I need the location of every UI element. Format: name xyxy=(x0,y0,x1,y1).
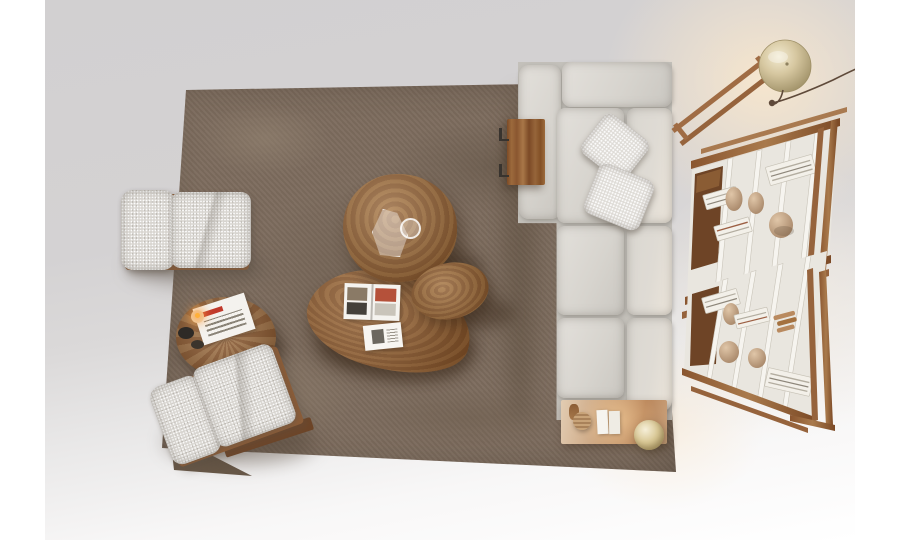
floor-lamp xyxy=(673,40,855,144)
shelf-mid-rail xyxy=(685,255,831,305)
shelf-divider xyxy=(731,271,756,393)
ceramic-vase xyxy=(726,187,743,211)
woven-box xyxy=(573,412,591,430)
book-stack xyxy=(714,217,753,241)
armchair-back-cushion xyxy=(121,190,175,270)
lamp-stand-rung xyxy=(675,124,687,139)
booklet-text-lines xyxy=(386,328,398,342)
candle-flame xyxy=(195,313,200,318)
sofa-backrest-cushion xyxy=(627,226,672,315)
sofa-seat-cushion xyxy=(557,226,624,315)
shelf-bottom-rail xyxy=(682,368,815,424)
book-stack xyxy=(765,154,816,185)
side-table-leg xyxy=(499,128,509,141)
photo-frame xyxy=(0,0,900,540)
side-table-leg xyxy=(499,164,509,177)
bookshelf-upper xyxy=(682,107,847,319)
shelf-divider xyxy=(715,158,733,292)
shelf-right-post xyxy=(807,127,824,270)
book-stack xyxy=(701,288,740,313)
ceramic-vase xyxy=(719,341,739,363)
shelf-panel-bank xyxy=(684,251,827,418)
shelf-right-post xyxy=(807,268,818,422)
shelf-right-post xyxy=(819,270,833,427)
booklet-photo xyxy=(371,329,384,344)
bookshelf-lower xyxy=(682,251,835,433)
armchair-seat-cushion xyxy=(171,192,251,268)
warm-light-glow-mid xyxy=(645,160,855,440)
book-stack xyxy=(734,307,770,329)
small-dark-bowl xyxy=(178,327,194,339)
shelf-panel-bank xyxy=(687,127,837,300)
walnut-panel-sheen xyxy=(696,169,721,193)
sofa-side-table xyxy=(507,119,545,185)
lamp-highlight xyxy=(768,51,788,63)
book-on-console xyxy=(596,410,608,435)
shelf-divider xyxy=(743,150,762,284)
shelf-divider xyxy=(706,279,728,384)
studio-floor xyxy=(45,0,855,540)
walnut-back-panel xyxy=(690,286,719,366)
sofa-backrest-cushion xyxy=(627,318,672,412)
lamp-stand-rail xyxy=(673,63,761,131)
small-dark-dish xyxy=(191,340,204,349)
magazine-photo xyxy=(375,288,396,302)
book-stack xyxy=(703,186,740,210)
sofa-seat-cushion xyxy=(557,318,624,398)
ceramic-vase xyxy=(748,348,766,368)
shelf-mid-rail xyxy=(682,269,829,319)
shelf-right-post xyxy=(819,119,838,272)
lamp-stand-rail xyxy=(681,76,769,144)
book-stack xyxy=(764,368,813,397)
sofa-top-back-cushion xyxy=(562,62,672,107)
book-on-console xyxy=(609,411,620,434)
shelf-divider xyxy=(800,132,820,270)
lamp-cord xyxy=(772,66,855,104)
magazine-photo xyxy=(347,302,367,315)
ceramic-sphere xyxy=(769,212,793,238)
magazine-crease xyxy=(370,284,373,320)
magazine-photo xyxy=(347,287,367,301)
shelf-top-rail-back xyxy=(701,107,847,154)
ceramic-vase xyxy=(723,303,739,325)
cord-weight xyxy=(769,100,775,106)
brass-sphere-lamp xyxy=(634,420,664,450)
wood-sculpture xyxy=(773,310,799,333)
ceramic-shadow xyxy=(774,226,794,236)
magazine-photo xyxy=(375,303,396,316)
shelf-divider xyxy=(782,256,811,412)
white-booklet xyxy=(363,322,403,351)
lamp-apex-hole xyxy=(785,62,788,65)
open-magazine xyxy=(343,283,400,321)
lamp-dome-shade xyxy=(759,40,811,92)
shelf-divider xyxy=(757,264,783,403)
lamp-stand-rung xyxy=(757,57,769,72)
ceramic-vase xyxy=(748,192,764,214)
walnut-back-panel xyxy=(691,166,723,270)
armchair-top-left xyxy=(121,188,251,274)
shelf-foot-rail xyxy=(790,415,835,431)
shelf-top-rail xyxy=(691,118,840,169)
shelf-divider xyxy=(771,141,791,277)
glass-cup xyxy=(400,218,421,239)
shelf-bottom-rail xyxy=(691,386,808,433)
